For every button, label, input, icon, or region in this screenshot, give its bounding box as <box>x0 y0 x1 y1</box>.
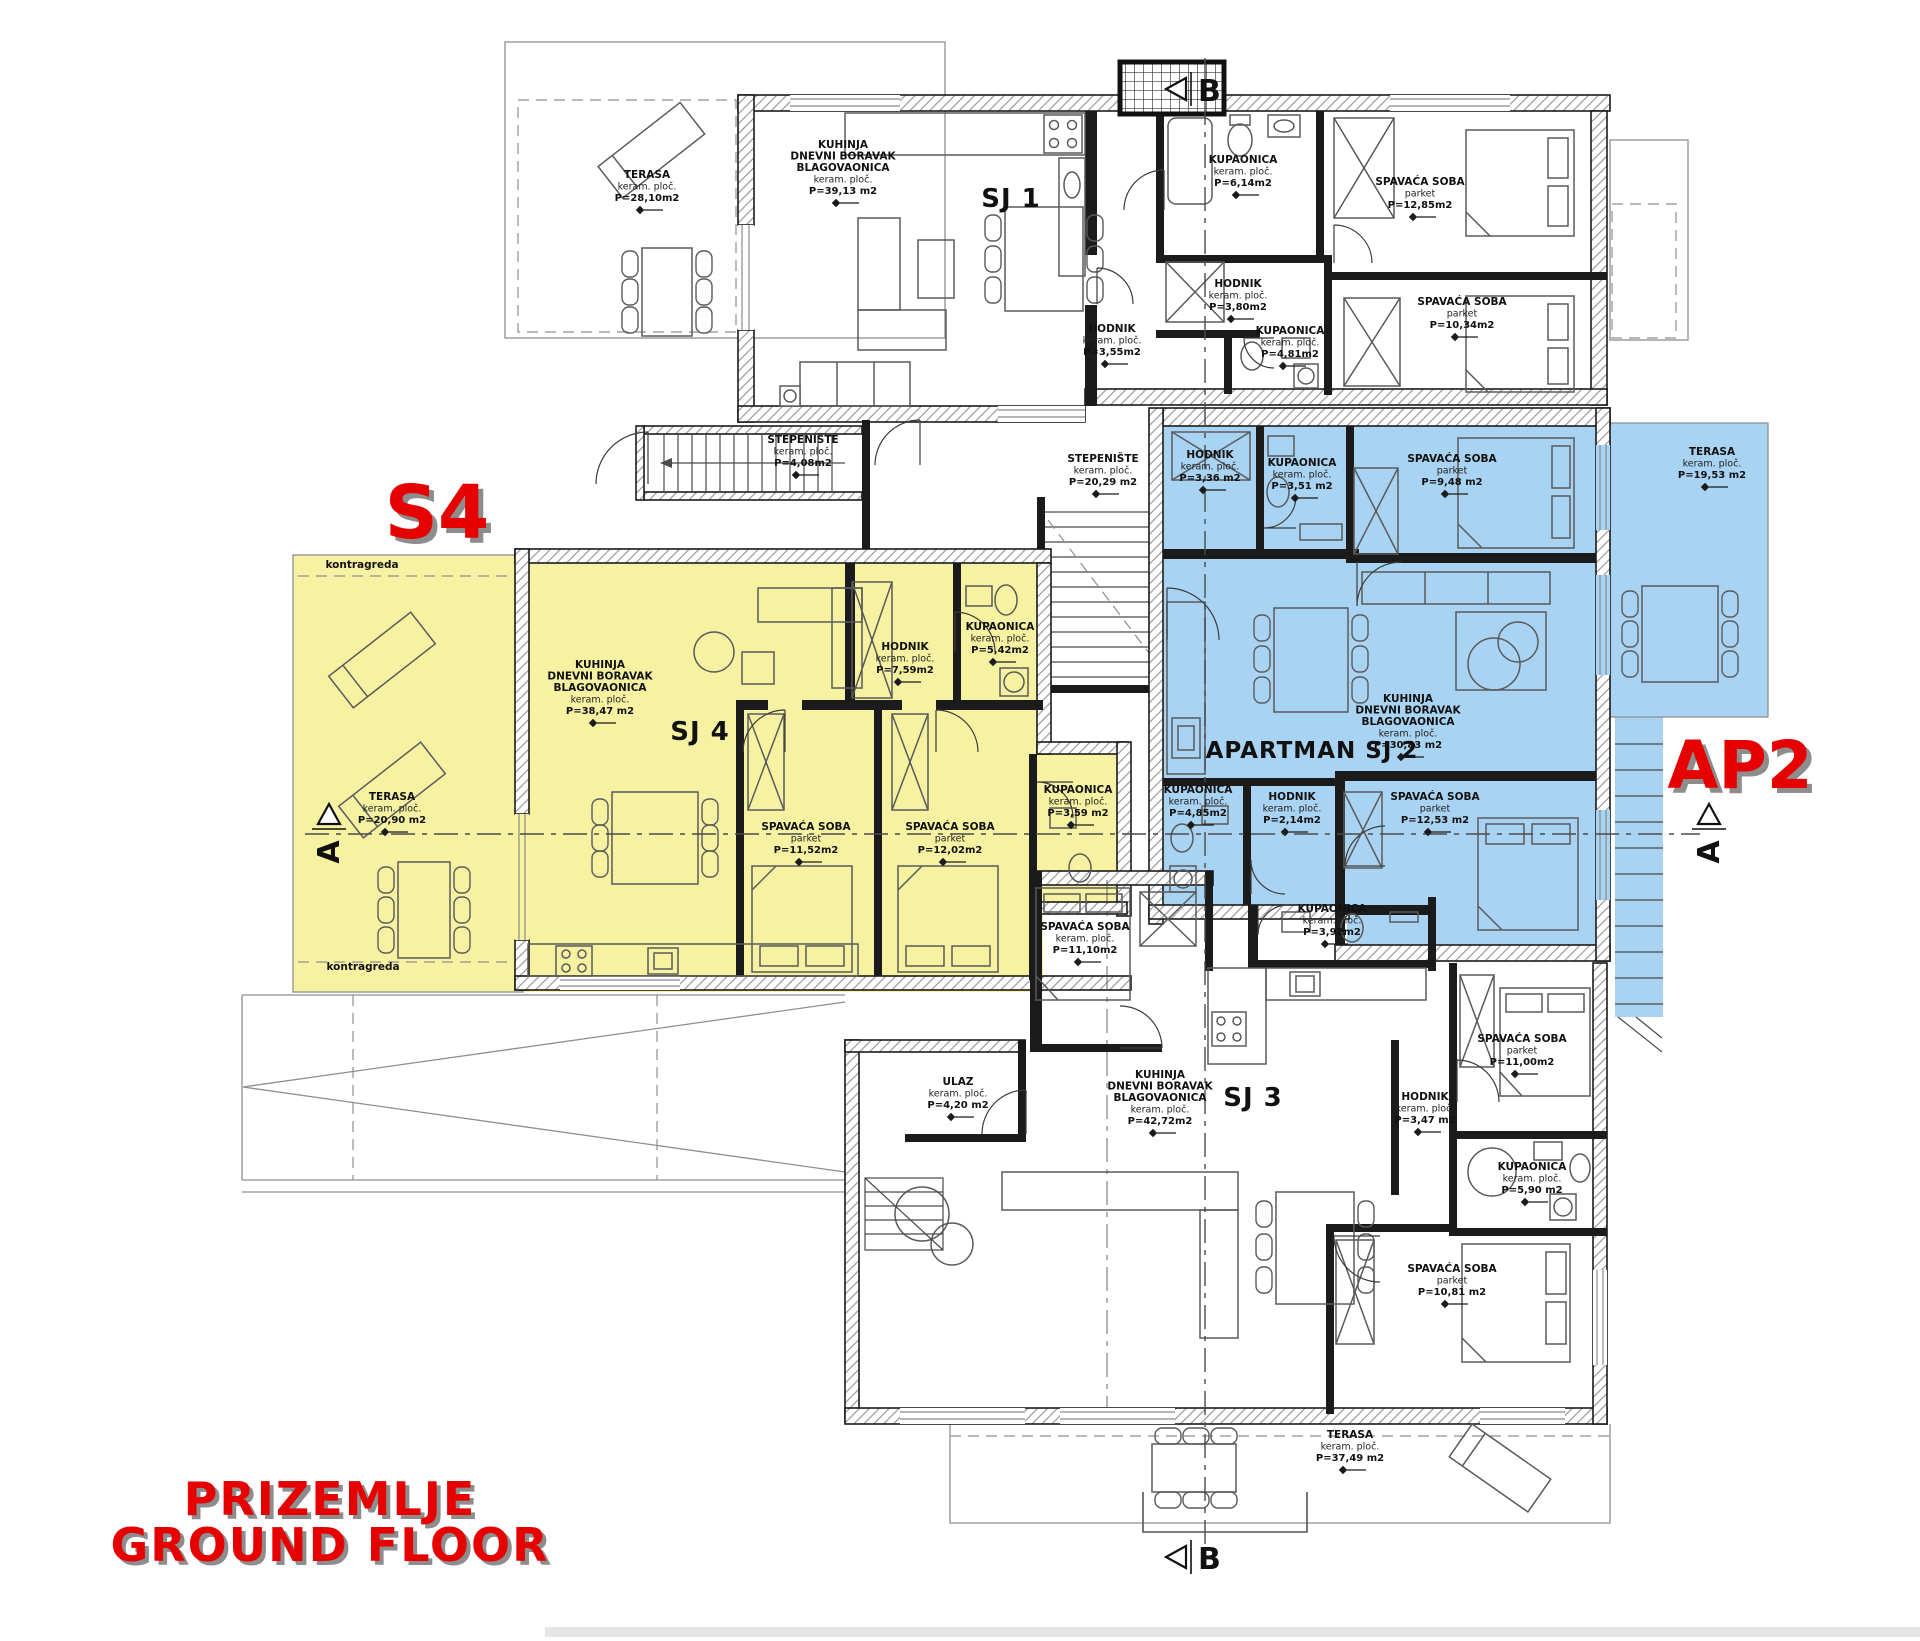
s4-main-region <box>515 549 1043 992</box>
walls-sj1 <box>738 95 1610 422</box>
svg-text:keram. ploč.: keram. ploč. <box>1209 291 1268 302</box>
room-label: SPAVAĆA SOBAparketP=10,34m2 <box>1417 295 1507 341</box>
window <box>1596 445 1610 530</box>
svg-text:STEPENIŠTE: STEPENIŠTE <box>767 433 838 446</box>
bottom-edge-artifact <box>545 1627 1920 1637</box>
svg-text:keram. ploč.: keram. ploč. <box>774 447 833 458</box>
room-label: KUHINJADNEVNI BORAVAKBLAGOVAONICAkeram. … <box>790 139 896 207</box>
area-marker-icon <box>1101 360 1109 368</box>
svg-text:SPAVAĆA SOBA: SPAVAĆA SOBA <box>1417 295 1507 308</box>
svg-text:DNEVNI BORAVAK: DNEVNI BORAVAK <box>790 151 896 163</box>
svg-text:P=38,47 m2: P=38,47 m2 <box>566 706 634 717</box>
room-label: SPAVAĆA SOBAparketP=10,81 m2 <box>1407 1262 1497 1308</box>
window <box>515 814 529 940</box>
floor-title-line2: GROUND FLOOR <box>110 1518 549 1572</box>
room-label: HODNIKkeram. ploč.P=3,80m2 <box>1209 278 1268 323</box>
area-marker-icon <box>1149 1129 1157 1137</box>
room-label: SPAVAĆA SOBAparketP=11,00m2 <box>1477 1032 1567 1078</box>
svg-text:P=2,14m2: P=2,14m2 <box>1263 815 1321 826</box>
svg-text:keram. ploč.: keram. ploč. <box>1379 729 1438 740</box>
area-marker-icon <box>1074 958 1082 966</box>
svg-text:P=12,53 m2: P=12,53 m2 <box>1401 815 1469 826</box>
svg-text:P=42,72m2: P=42,72m2 <box>1128 1116 1193 1127</box>
svg-text:P=3,47 m2: P=3,47 m2 <box>1394 1115 1455 1126</box>
area-marker-icon <box>1321 940 1329 948</box>
area-marker-icon <box>1092 490 1100 498</box>
unit-label-sj1: SJ 1 <box>981 184 1041 214</box>
room-label: KUHINJADNEVNI BORAVAKBLAGOVAONICAkeram. … <box>1107 1069 1213 1137</box>
window <box>1593 1270 1607 1365</box>
svg-text:KUPAONICA: KUPAONICA <box>966 621 1036 633</box>
wardrobe-icon <box>1336 1240 1374 1344</box>
svg-text:keram. ploč.: keram. ploč. <box>1321 1442 1380 1453</box>
dining-table <box>1276 1192 1354 1304</box>
svg-text:keram. ploč.: keram. ploč. <box>618 182 677 193</box>
area-marker-icon <box>1279 362 1287 370</box>
svg-text:keram. ploč.: keram. ploč. <box>1261 338 1320 349</box>
window <box>1060 1408 1175 1424</box>
svg-text:P=11,10m2: P=11,10m2 <box>1053 945 1118 956</box>
svg-text:kontragreda: kontragreda <box>325 559 398 571</box>
room-label: STEPENIŠTEkeram. ploč.P=20,29 m2 <box>1067 452 1138 498</box>
svg-text:keram. ploč.: keram. ploč. <box>1396 1104 1455 1115</box>
svg-text:P=12,85m2: P=12,85m2 <box>1388 200 1453 211</box>
area-marker-icon <box>1451 333 1459 341</box>
svg-text:keram. ploč.: keram. ploč. <box>1263 804 1322 815</box>
room-label: STEPENIŠTEkeram. ploč.P=4,08m2 <box>767 433 838 479</box>
svg-text:P=12,02m2: P=12,02m2 <box>918 845 983 856</box>
svg-text:SPAVAĆA SOBA: SPAVAĆA SOBA <box>905 820 995 833</box>
svg-text:STEPENIŠTE: STEPENIŠTE <box>1067 452 1138 465</box>
svg-text:keram. ploč.: keram. ploč. <box>1214 167 1273 178</box>
kitchen-counter <box>845 113 1085 155</box>
area-marker-icon <box>1441 1300 1449 1308</box>
svg-text:P=5,90 m2: P=5,90 m2 <box>1501 1185 1562 1196</box>
stove-icon <box>1044 115 1082 153</box>
svg-text:P=4,20 m2: P=4,20 m2 <box>927 1100 988 1111</box>
svg-text:DNEVNI BORAVAK: DNEVNI BORAVAK <box>547 671 653 683</box>
window <box>1480 1408 1565 1424</box>
section-label-a-right: A <box>1692 840 1727 864</box>
window <box>738 225 754 330</box>
svg-text:keram. ploč.: keram. ploč. <box>1049 797 1108 808</box>
svg-text:BLAGOVAONICA: BLAGOVAONICA <box>1113 1092 1207 1104</box>
svg-text:P=20,29 m2: P=20,29 m2 <box>1069 477 1137 488</box>
svg-text:P=5,42m2: P=5,42m2 <box>971 645 1029 656</box>
svg-text:P=11,00m2: P=11,00m2 <box>1490 1057 1555 1068</box>
svg-text:SPAVAĆA SOBA: SPAVAĆA SOBA <box>1407 452 1497 465</box>
svg-text:keram. ploč.: keram. ploč. <box>1503 1174 1562 1185</box>
svg-text:P=3,92m2: P=3,92m2 <box>1303 927 1361 938</box>
area-marker-icon <box>1414 1128 1422 1136</box>
svg-text:P=11,52m2: P=11,52m2 <box>774 845 839 856</box>
svg-text:P=10,81 m2: P=10,81 m2 <box>1418 1287 1486 1298</box>
area-marker-icon <box>1409 213 1417 221</box>
svg-text:TERASA: TERASA <box>1327 1429 1374 1441</box>
sofa <box>858 218 900 310</box>
wardrobe-icon <box>1460 975 1494 1067</box>
svg-text:P=9,48 m2: P=9,48 m2 <box>1421 477 1482 488</box>
room-label: TERASAkeram. ploč.P=28,10m2 <box>615 169 680 214</box>
svg-text:HODNIK: HODNIK <box>1268 791 1316 803</box>
svg-text:KUPAONICA: KUPAONICA <box>1044 784 1114 796</box>
svg-text:keram. ploč.: keram. ploč. <box>1131 1105 1190 1116</box>
svg-text:TERASA: TERASA <box>624 169 671 181</box>
svg-text:KUHINJA: KUHINJA <box>818 139 869 151</box>
svg-text:KUPAONICA: KUPAONICA <box>1164 784 1234 796</box>
svg-text:BLAGOVAONICA: BLAGOVAONICA <box>1361 716 1455 728</box>
svg-text:P=3,51 m2: P=3,51 m2 <box>1271 481 1332 492</box>
dining-table <box>1005 207 1083 311</box>
svg-text:P=20,90 m2: P=20,90 m2 <box>358 815 426 826</box>
area-marker-icon <box>1521 1198 1529 1206</box>
sink-icon <box>1064 172 1080 198</box>
room-label: kontragreda <box>326 961 399 973</box>
svg-text:P=6,14m2: P=6,14m2 <box>1214 178 1272 189</box>
s4-title: S4 <box>385 470 490 556</box>
svg-text:P=4,85m2: P=4,85m2 <box>1169 808 1227 819</box>
svg-text:keram. ploč.: keram. ploč. <box>1181 462 1240 473</box>
svg-text:keram. ploč.: keram. ploč. <box>1683 459 1742 470</box>
svg-text:HODNIK: HODNIK <box>881 641 929 653</box>
kitchen-counter <box>1208 968 1266 1064</box>
window <box>1596 810 1610 900</box>
svg-text:P=3,59 m2: P=3,59 m2 <box>1047 808 1108 819</box>
svg-text:SPAVAĆA SOBA: SPAVAĆA SOBA <box>1375 175 1465 188</box>
svg-text:keram. ploč.: keram. ploč. <box>929 1089 988 1100</box>
svg-text:KUHINJA: KUHINJA <box>1135 1069 1186 1081</box>
sofa <box>800 362 910 406</box>
s4-terrace-region <box>293 555 523 992</box>
svg-text:parket: parket <box>1437 1276 1468 1287</box>
section-label-b-bottom: B <box>1198 1542 1221 1577</box>
fireplace-icon <box>780 386 800 406</box>
wardrobe-icon <box>1344 298 1400 386</box>
svg-text:P=39,13 m2: P=39,13 m2 <box>809 186 877 197</box>
svg-text:keram. ploč.: keram. ploč. <box>1056 934 1115 945</box>
bed <box>1462 1244 1570 1362</box>
svg-text:HODNIK: HODNIK <box>1214 278 1262 290</box>
window <box>1390 95 1510 111</box>
svg-text:keram. ploč.: keram. ploč. <box>571 695 630 706</box>
svg-text:parket: parket <box>1405 189 1436 200</box>
ap2-title: AP2 <box>1667 727 1812 804</box>
svg-text:KUPAONICA: KUPAONICA <box>1298 903 1368 915</box>
svg-text:P=3,36 m2: P=3,36 m2 <box>1179 473 1240 484</box>
area-marker-icon <box>1339 1466 1347 1474</box>
wardrobe-icon <box>1334 118 1394 218</box>
svg-text:keram. ploč.: keram. ploč. <box>1273 470 1332 481</box>
svg-text:parket: parket <box>935 834 966 845</box>
lounger <box>1449 1424 1551 1512</box>
svg-text:parket: parket <box>1507 1046 1538 1057</box>
area-marker-icon <box>832 199 840 207</box>
svg-text:kontragreda: kontragreda <box>326 961 399 973</box>
svg-text:KUPAONICA: KUPAONICA <box>1268 457 1338 469</box>
svg-text:P=19,53 m2: P=19,53 m2 <box>1678 470 1746 481</box>
table <box>642 248 692 336</box>
table <box>1152 1444 1236 1492</box>
area-marker-icon <box>1511 1070 1519 1078</box>
window <box>998 406 1085 422</box>
sofa <box>1002 1172 1238 1210</box>
svg-text:SPAVAĆA SOBA: SPAVAĆA SOBA <box>1040 920 1130 933</box>
svg-text:keram. ploč.: keram. ploč. <box>876 654 935 665</box>
washbasin-icon <box>1268 115 1300 137</box>
bed <box>1466 296 1574 392</box>
svg-text:parket: parket <box>1447 309 1478 320</box>
svg-text:keram. ploč.: keram. ploč. <box>1083 336 1142 347</box>
washbasin-icon <box>1534 1142 1562 1160</box>
svg-text:keram. ploč.: keram. ploč. <box>1074 466 1133 477</box>
svg-text:keram. ploč.: keram. ploč. <box>363 804 422 815</box>
svg-text:TERASA: TERASA <box>369 791 416 803</box>
svg-text:KUHINJA: KUHINJA <box>575 659 626 671</box>
area-marker-icon <box>1227 315 1235 323</box>
svg-text:DNEVNI BORAVAK: DNEVNI BORAVAK <box>1355 705 1461 717</box>
svg-text:HODNIK: HODNIK <box>1186 449 1234 461</box>
svg-text:DNEVNI BORAVAK: DNEVNI BORAVAK <box>1107 1081 1213 1093</box>
room-label: kontragreda <box>325 559 398 571</box>
area-marker-icon <box>636 206 644 214</box>
stove-icon <box>1212 1012 1246 1046</box>
svg-text:keram. ploč.: keram. ploč. <box>1303 916 1362 927</box>
svg-text:P=3,80m2: P=3,80m2 <box>1209 302 1267 313</box>
svg-text:SPAVAĆA SOBA: SPAVAĆA SOBA <box>761 820 851 833</box>
room-label: KUPAONICAkeram. ploč.P=6,14m2 <box>1209 154 1279 199</box>
svg-text:P=4,81m2: P=4,81m2 <box>1261 349 1319 360</box>
svg-text:P=28,10m2: P=28,10m2 <box>615 193 680 204</box>
coffee-table <box>918 240 954 298</box>
svg-text:keram. ploč.: keram. ploč. <box>971 634 1030 645</box>
svg-text:parket: parket <box>791 834 822 845</box>
sink-icon <box>1290 972 1320 996</box>
svg-text:SPAVAĆA SOBA: SPAVAĆA SOBA <box>1407 1262 1497 1275</box>
svg-text:P=7,59m2: P=7,59m2 <box>876 665 934 676</box>
svg-text:KUPAONICA: KUPAONICA <box>1209 154 1279 166</box>
svg-text:BLAGOVAONICA: BLAGOVAONICA <box>553 682 647 694</box>
washer-icon <box>1294 364 1318 388</box>
window <box>560 976 680 990</box>
room-label: ULAZkeram. ploč.P=4,20 m2 <box>927 1076 988 1121</box>
bed <box>1466 130 1574 236</box>
section-marker-b-bottom: B <box>1166 1540 1221 1577</box>
area-marker-icon <box>947 1113 955 1121</box>
unit-label-sj3: SJ 3 <box>1223 1083 1283 1113</box>
svg-text:P=30,83 m2: P=30,83 m2 <box>1374 740 1442 751</box>
area-marker-icon <box>792 471 800 479</box>
svg-text:keram. ploč.: keram. ploč. <box>1169 797 1228 808</box>
svg-text:keram. ploč.: keram. ploč. <box>814 175 873 186</box>
svg-text:KUPAONICA: KUPAONICA <box>1256 325 1326 337</box>
room-label: SPAVAĆA SOBAparketP=12,85m2 <box>1375 175 1465 221</box>
window <box>790 95 900 111</box>
svg-text:parket: parket <box>1420 804 1451 815</box>
unit-label-sj4: SJ 4 <box>670 717 730 747</box>
washer-icon <box>1550 1194 1576 1220</box>
svg-text:KUHINJA: KUHINJA <box>1383 693 1434 705</box>
svg-text:KUPAONICA: KUPAONICA <box>1498 1161 1568 1173</box>
section-label-a-left: A <box>312 840 347 864</box>
svg-text:P=10,34m2: P=10,34m2 <box>1430 320 1495 331</box>
floor-plan-drawing: B B A A S4 S4 AP2 AP2 PRIZEMLJE PRIZEMLJ… <box>0 0 1920 1637</box>
svg-text:TERASA: TERASA <box>1689 446 1736 458</box>
section-label-b-top: B <box>1198 74 1221 109</box>
window <box>900 1408 1025 1424</box>
room-label: SPAVAĆA SOBAkeram. ploč.P=11,10m2 <box>1040 920 1130 966</box>
svg-text:P=37,49 m2: P=37,49 m2 <box>1316 1453 1384 1464</box>
svg-text:SPAVAĆA SOBA: SPAVAĆA SOBA <box>1477 1032 1567 1045</box>
floor-plan-page: B B A A S4 S4 AP2 AP2 PRIZEMLJE PRIZEMLJ… <box>0 0 1920 1637</box>
window <box>1596 575 1610 675</box>
svg-text:ULAZ: ULAZ <box>943 1076 974 1088</box>
toilet-icon <box>1228 115 1252 156</box>
room-label: HODNIKkeram. ploč.P=3,47 m2 <box>1394 1091 1455 1136</box>
svg-text:P=3,55m2: P=3,55m2 <box>1083 347 1141 358</box>
armchair <box>895 1187 949 1241</box>
area-marker-icon <box>1232 191 1240 199</box>
svg-text:SPAVAĆA SOBA: SPAVAĆA SOBA <box>1390 790 1480 803</box>
svg-text:HODNIK: HODNIK <box>1088 323 1136 335</box>
svg-text:HODNIK: HODNIK <box>1401 1091 1449 1103</box>
room-label: KUPAONICAkeram. ploč.P=5,90 m2 <box>1498 1161 1568 1206</box>
ap2-stair-region <box>1615 717 1663 1017</box>
toilet-icon <box>1570 1154 1590 1182</box>
svg-text:parket: parket <box>1437 466 1468 477</box>
svg-text:BLAGOVAONICA: BLAGOVAONICA <box>796 162 890 174</box>
svg-text:P=4,08m2: P=4,08m2 <box>774 458 832 469</box>
